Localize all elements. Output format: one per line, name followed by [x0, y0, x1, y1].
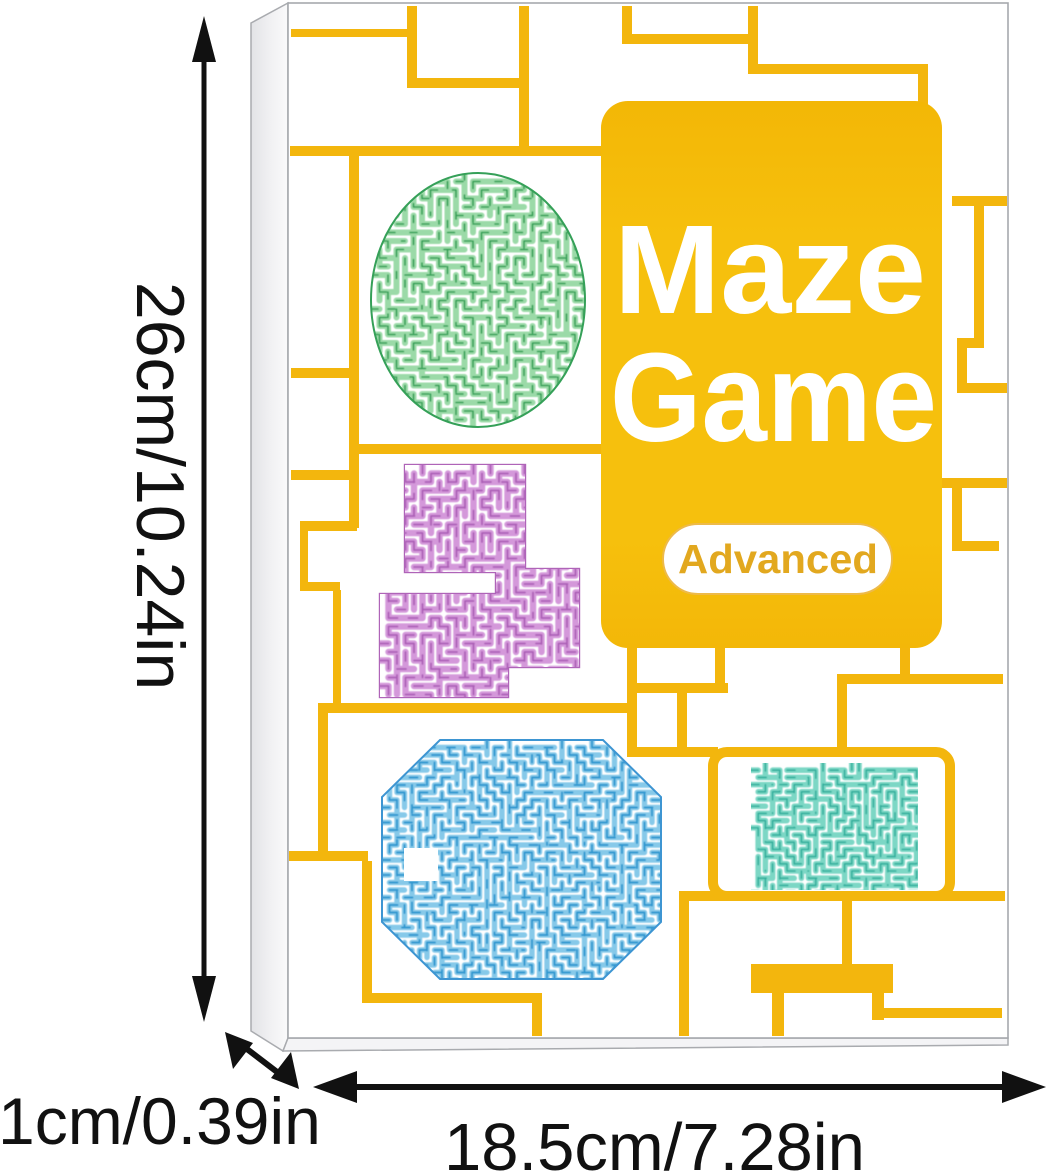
svg-text:1cm/0.39in: 1cm/0.39in [0, 1084, 321, 1158]
svg-text:26cm/10.24in: 26cm/10.24in [122, 282, 198, 690]
svg-text:Advanced: Advanced [678, 536, 878, 582]
svg-text:18.5cm/7.28in: 18.5cm/7.28in [444, 1110, 865, 1173]
svg-text:Game: Game [610, 327, 937, 468]
svg-text:Maze: Maze [614, 199, 926, 340]
